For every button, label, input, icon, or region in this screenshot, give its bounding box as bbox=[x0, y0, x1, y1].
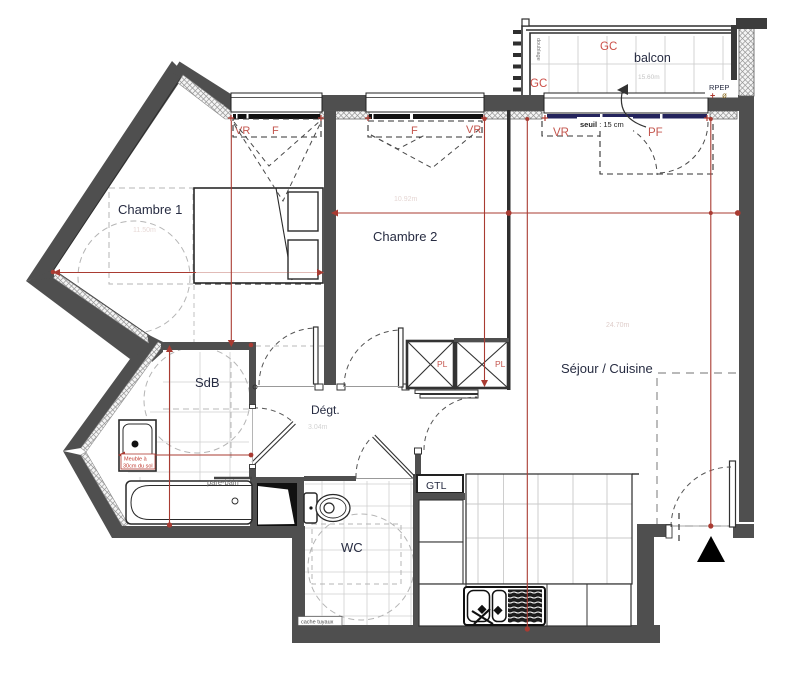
svg-text:F: F bbox=[411, 125, 418, 137]
svg-text:doublage: doublage bbox=[535, 38, 541, 61]
svg-text:VR: VR bbox=[235, 125, 250, 137]
svg-text:Dégt.: Dégt. bbox=[311, 403, 340, 417]
svg-text:Séjour / Cuisine: Séjour / Cuisine bbox=[561, 361, 653, 376]
svg-text:+: + bbox=[710, 91, 715, 101]
svg-text:PF: PF bbox=[648, 127, 663, 139]
svg-text:seuil : 15 cm: seuil : 15 cm bbox=[580, 120, 624, 129]
svg-text:PL: PL bbox=[495, 359, 506, 369]
svg-text:3.04m: 3.04m bbox=[308, 424, 328, 431]
svg-text:PL: PL bbox=[437, 359, 448, 369]
svg-text:ø: ø bbox=[722, 91, 727, 100]
svg-text:GTL: GTL bbox=[426, 480, 447, 492]
svg-text:SdB: SdB bbox=[195, 375, 220, 390]
svg-text:30cm du sol: 30cm du sol bbox=[123, 464, 153, 470]
svg-text:cache tuyaux: cache tuyaux bbox=[301, 620, 334, 626]
svg-text:balcon: balcon bbox=[634, 51, 671, 65]
svg-text:F: F bbox=[272, 125, 279, 137]
svg-text:Chambre 1: Chambre 1 bbox=[118, 202, 182, 217]
svg-text:15.60m: 15.60m bbox=[638, 74, 660, 81]
svg-text:GC: GC bbox=[600, 41, 617, 53]
svg-text:24.70m: 24.70m bbox=[606, 322, 630, 329]
svg-text:10.92m: 10.92m bbox=[394, 196, 418, 203]
svg-text:WC: WC bbox=[341, 540, 363, 555]
svg-text:VR: VR bbox=[553, 127, 569, 139]
svg-text:VR: VR bbox=[466, 124, 481, 136]
svg-text:11.50m: 11.50m bbox=[133, 227, 156, 234]
svg-text:pare-bain: pare-bain bbox=[207, 478, 239, 487]
svg-text:Meuble à: Meuble à bbox=[124, 457, 148, 463]
svg-text:Chambre 2: Chambre 2 bbox=[373, 229, 437, 244]
svg-text:GC: GC bbox=[530, 78, 547, 90]
